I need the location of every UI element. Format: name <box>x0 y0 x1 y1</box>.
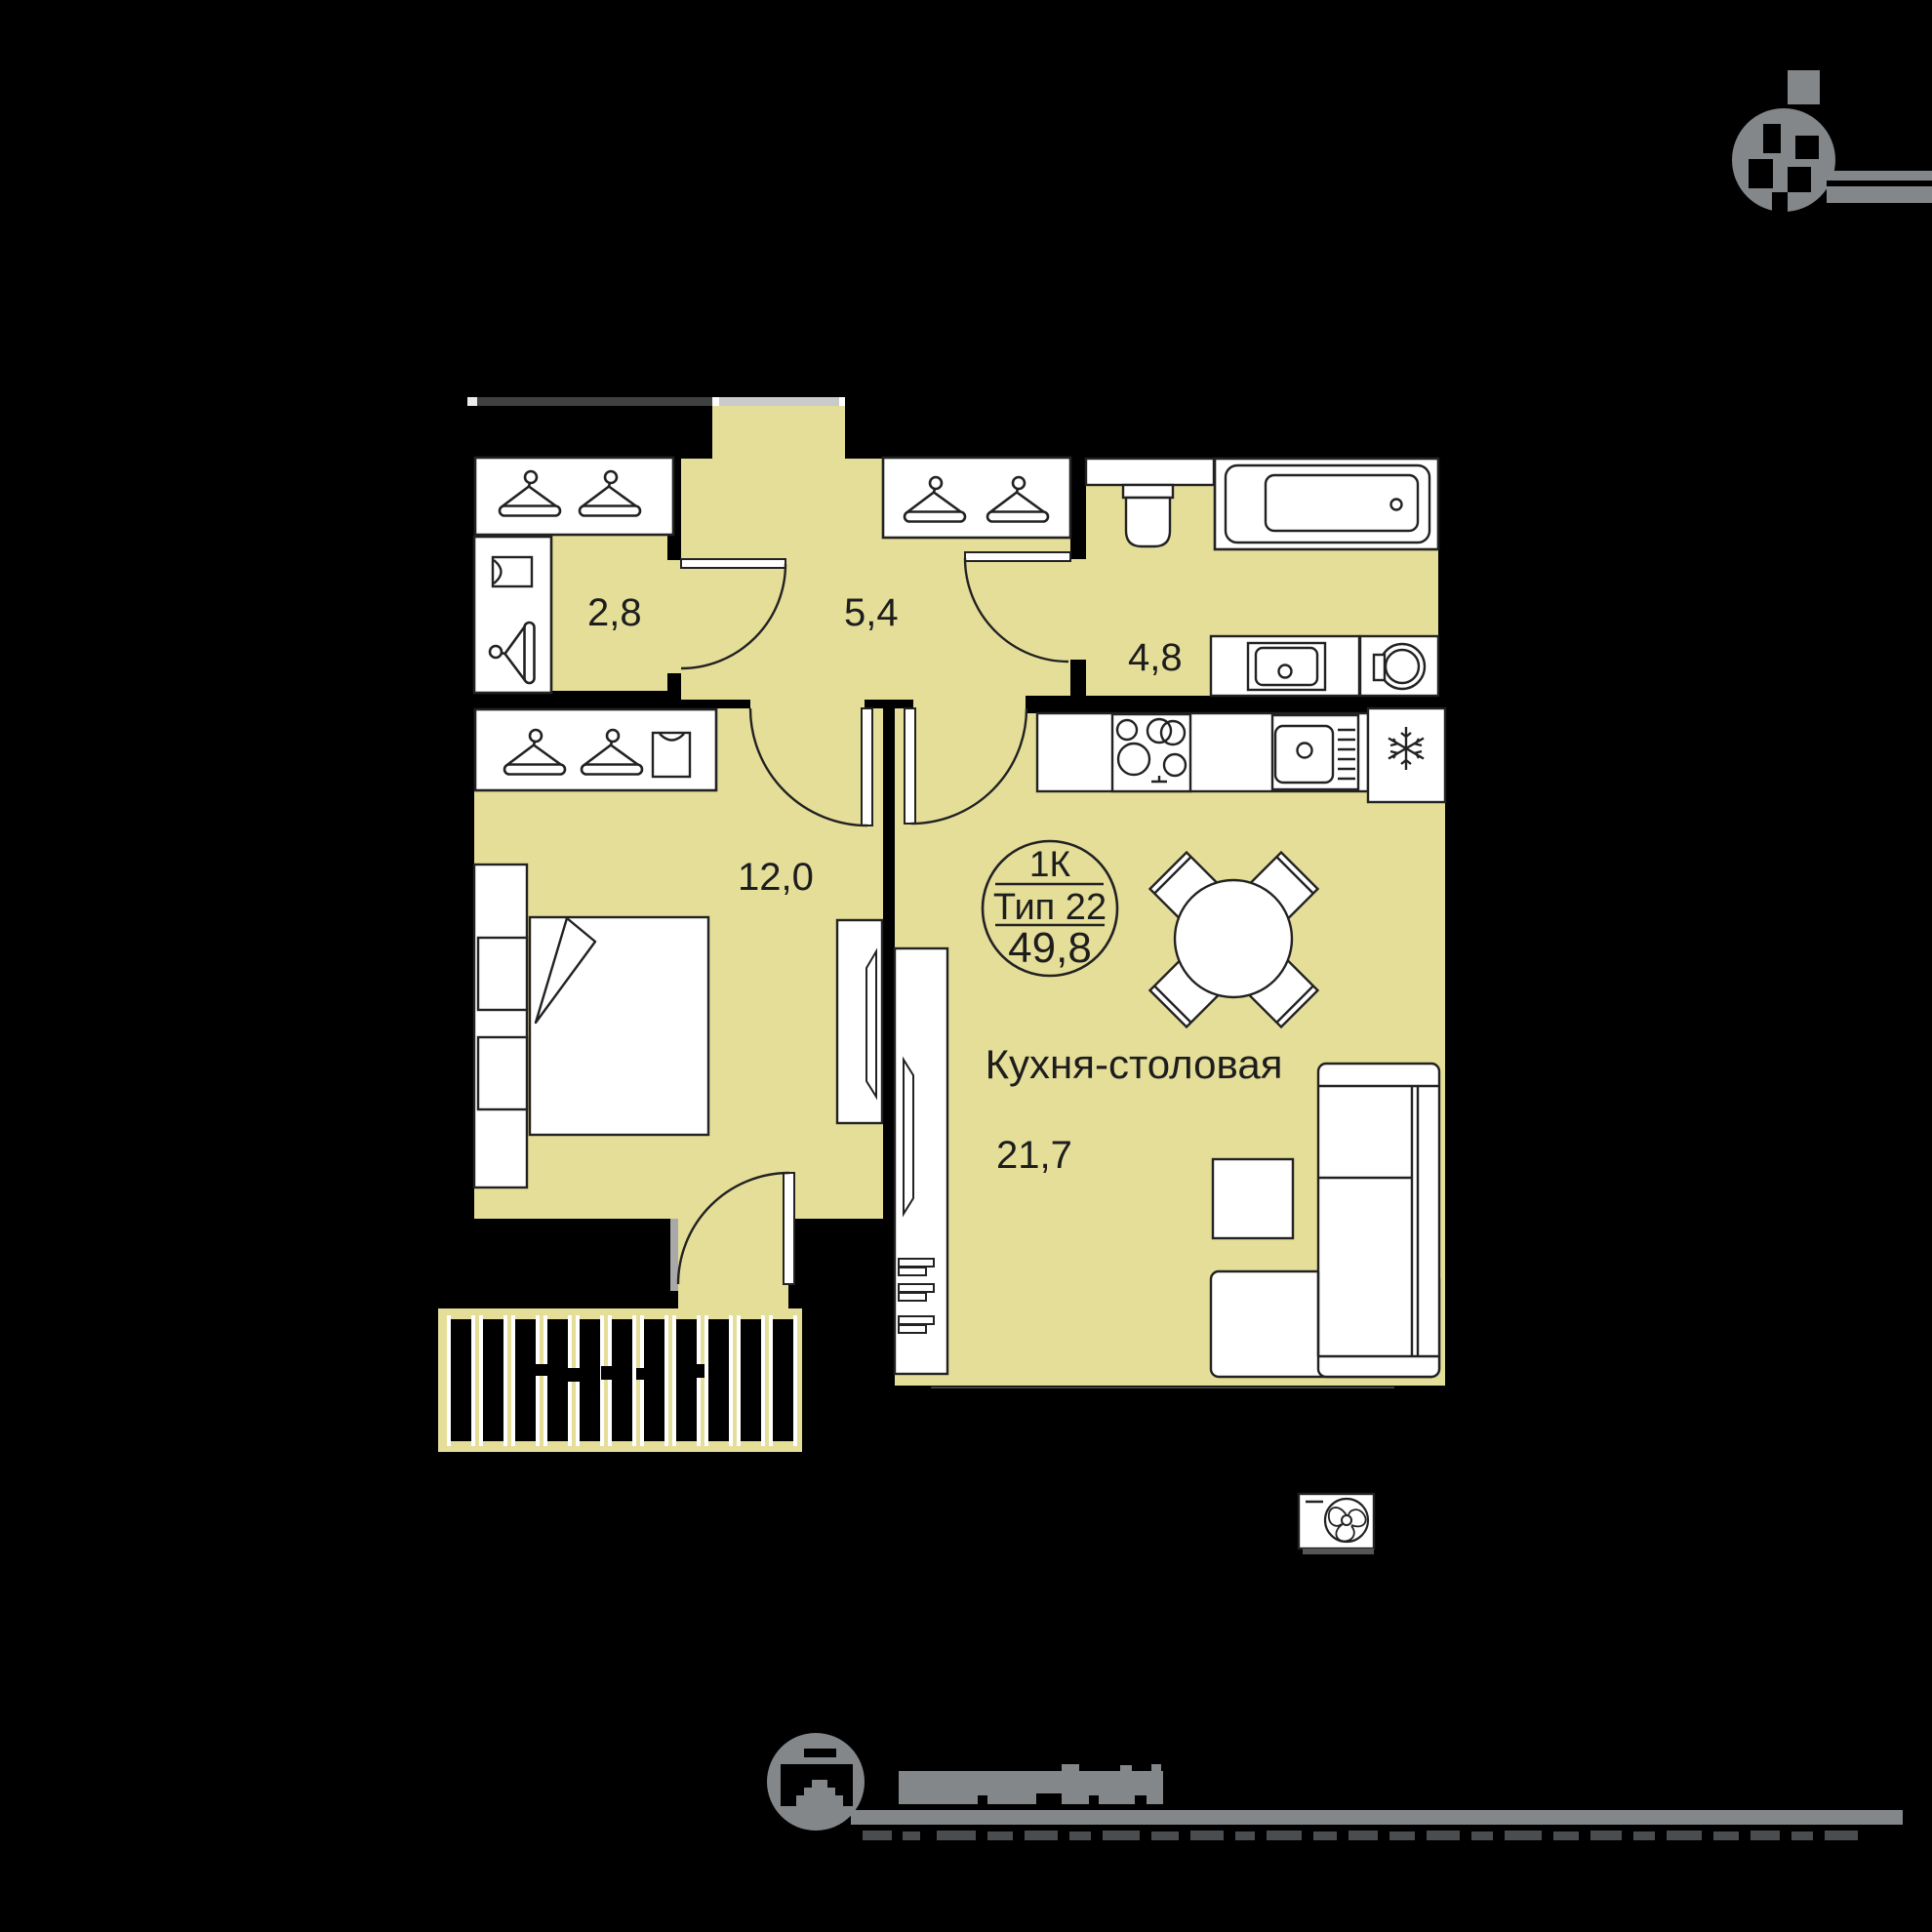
svg-text:4,8: 4,8 <box>1128 636 1183 679</box>
svg-text:1К: 1К <box>1029 844 1071 884</box>
svg-text:12,0: 12,0 <box>738 856 814 899</box>
svg-text:Кухня-столовая: Кухня-столовая <box>986 1041 1283 1087</box>
svg-text:2,8: 2,8 <box>587 591 642 634</box>
svg-text:5,4: 5,4 <box>844 591 899 634</box>
svg-text:Тип 22: Тип 22 <box>993 887 1107 928</box>
svg-text:49,8: 49,8 <box>1008 924 1092 972</box>
svg-text:21,7: 21,7 <box>996 1134 1072 1177</box>
